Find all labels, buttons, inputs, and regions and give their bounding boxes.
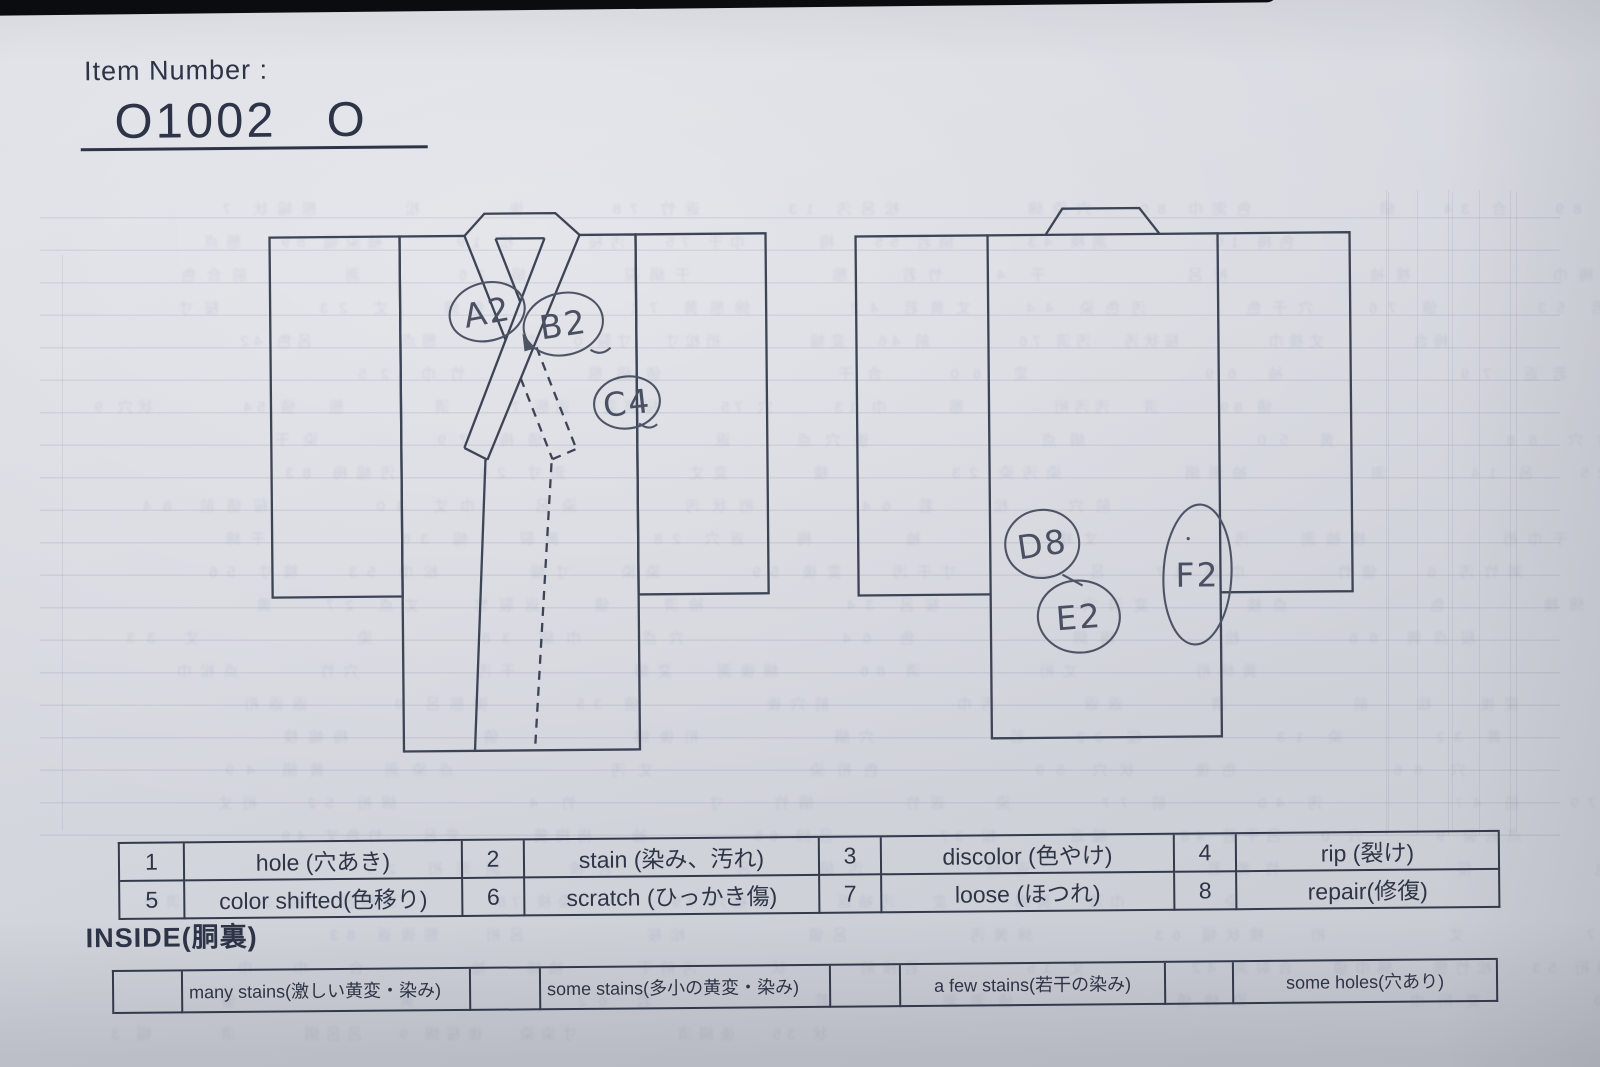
kimono-back-outline [855, 206, 1354, 739]
front-neckband [464, 213, 579, 236]
annotation-B2-tail [590, 348, 610, 353]
front-hidden-edges-dashed [520, 347, 579, 750]
annotation-code-A2: A2 [460, 289, 514, 336]
annotation-code-D8: D8 [1014, 521, 1070, 567]
front-overlap-edge [472, 460, 488, 751]
inspection-sheet-photo: 寸 桜検 89 合 34 絹 色測巾 80 穴染綿 松呂汚 13 返竹 78 後… [0, 0, 1600, 1067]
annotation-code-E2: E2 [1055, 596, 1104, 638]
front-left-sleeve [270, 236, 403, 597]
back-right-sleeve [1218, 232, 1353, 592]
annotation-code-F2: F2 [1175, 555, 1219, 594]
front-collar-over-band [463, 235, 582, 460]
paper-content: Item Number : O1002O [0, 0, 1600, 1067]
annotation-F-dot [1187, 537, 1190, 540]
annotation-code-B2: B2 [537, 302, 590, 348]
back-body [988, 233, 1222, 738]
back-neckband [1045, 208, 1159, 235]
annotation-code-C4: C4 [601, 381, 653, 425]
kimono-diagrams: A2 B2 C4 D8 E2 F2 [0, 0, 1600, 1067]
back-left-sleeve [856, 235, 991, 595]
front-body [400, 234, 640, 751]
